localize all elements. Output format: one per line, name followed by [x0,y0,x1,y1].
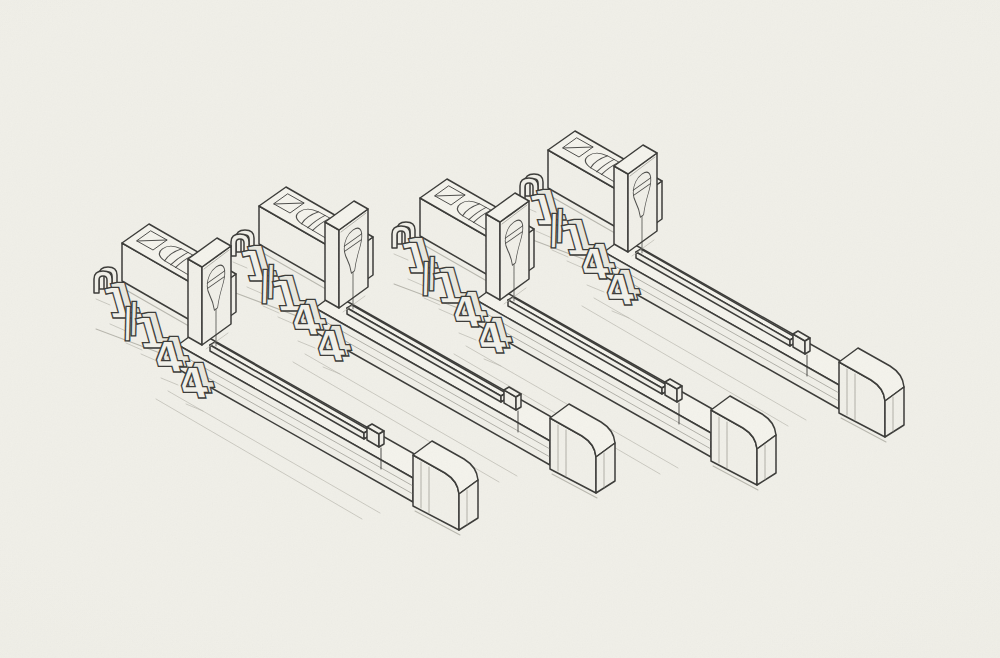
paper-grain [0,0,1000,658]
isometric-technical-drawing: 1 1 / / 1 1 4 4 4 4 [0,0,1000,658]
